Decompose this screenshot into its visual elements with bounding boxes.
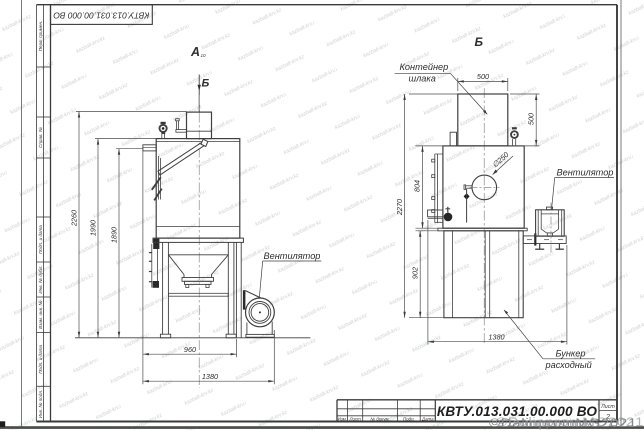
svg-text:КВТУ.013.031.00.000 ВО: КВТУ.013.031.00.000 ВО <box>53 10 149 20</box>
svg-text:Б: Б <box>475 35 484 49</box>
svg-text:Лист: Лист <box>600 404 615 410</box>
svg-text:Лист: Лист <box>349 416 362 421</box>
svg-text:Контейнер: Контейнер <box>400 62 449 72</box>
svg-text:№ докум.: № докум. <box>370 416 389 421</box>
svg-text:1890: 1890 <box>110 227 119 243</box>
svg-text:Взам. инв. №: Взам. инв. № <box>38 300 43 328</box>
svg-text:Инв. № дубл.: Инв. № дубл. <box>38 265 43 293</box>
svg-text:Дата: Дата <box>421 416 434 421</box>
svg-text:Бункер: Бункер <box>556 349 586 359</box>
svg-text:500: 500 <box>527 113 536 125</box>
svg-text:500: 500 <box>477 72 489 81</box>
svg-text:Перв. примен.: Перв. примен. <box>38 21 43 52</box>
svg-text:1380: 1380 <box>488 332 504 341</box>
svg-text:1990: 1990 <box>89 220 98 236</box>
svg-text:2260: 2260 <box>70 210 79 227</box>
svg-text:Инв. № подл.: Инв. № подл. <box>38 390 43 419</box>
svg-text:Б: Б <box>202 78 210 90</box>
svg-text:Подп. и дата: Подп. и дата <box>38 225 43 254</box>
svg-text:902: 902 <box>411 267 420 279</box>
svg-text:Изм.: Изм. <box>338 416 347 421</box>
svg-text:расходный: расходный <box>545 360 592 370</box>
svg-text:©DalinpromMG2021: ©DalinpromMG2021 <box>496 415 644 429</box>
svg-text:шлака: шлака <box>409 74 436 84</box>
svg-text:Вентилятор: Вентилятор <box>264 251 321 261</box>
svg-text:2270: 2270 <box>395 199 404 216</box>
svg-text:10: 10 <box>201 53 207 58</box>
svg-text:Справ. №: Справ. № <box>38 127 43 148</box>
svg-text:А: А <box>190 45 200 59</box>
svg-text:960: 960 <box>184 345 196 354</box>
svg-text:804: 804 <box>413 180 422 192</box>
svg-text:Вентилятор: Вентилятор <box>557 168 614 178</box>
svg-text:Подп. и дата: Подп. и дата <box>38 345 43 374</box>
svg-text:1380: 1380 <box>202 372 218 381</box>
svg-text:Подп.: Подп. <box>403 416 415 421</box>
